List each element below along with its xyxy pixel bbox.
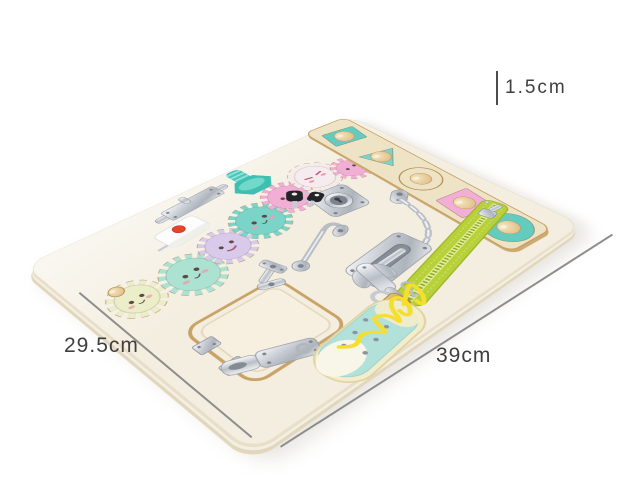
busy-board xyxy=(25,116,582,453)
product-photo: 1.5cm 29.5cm 39cm xyxy=(0,0,640,500)
dimension-line-thickness xyxy=(496,71,498,105)
side-length-label: 29.5cm xyxy=(64,334,139,358)
bottom-length-label: 39cm xyxy=(436,344,491,368)
thickness-label: 1.5cm xyxy=(505,77,567,99)
